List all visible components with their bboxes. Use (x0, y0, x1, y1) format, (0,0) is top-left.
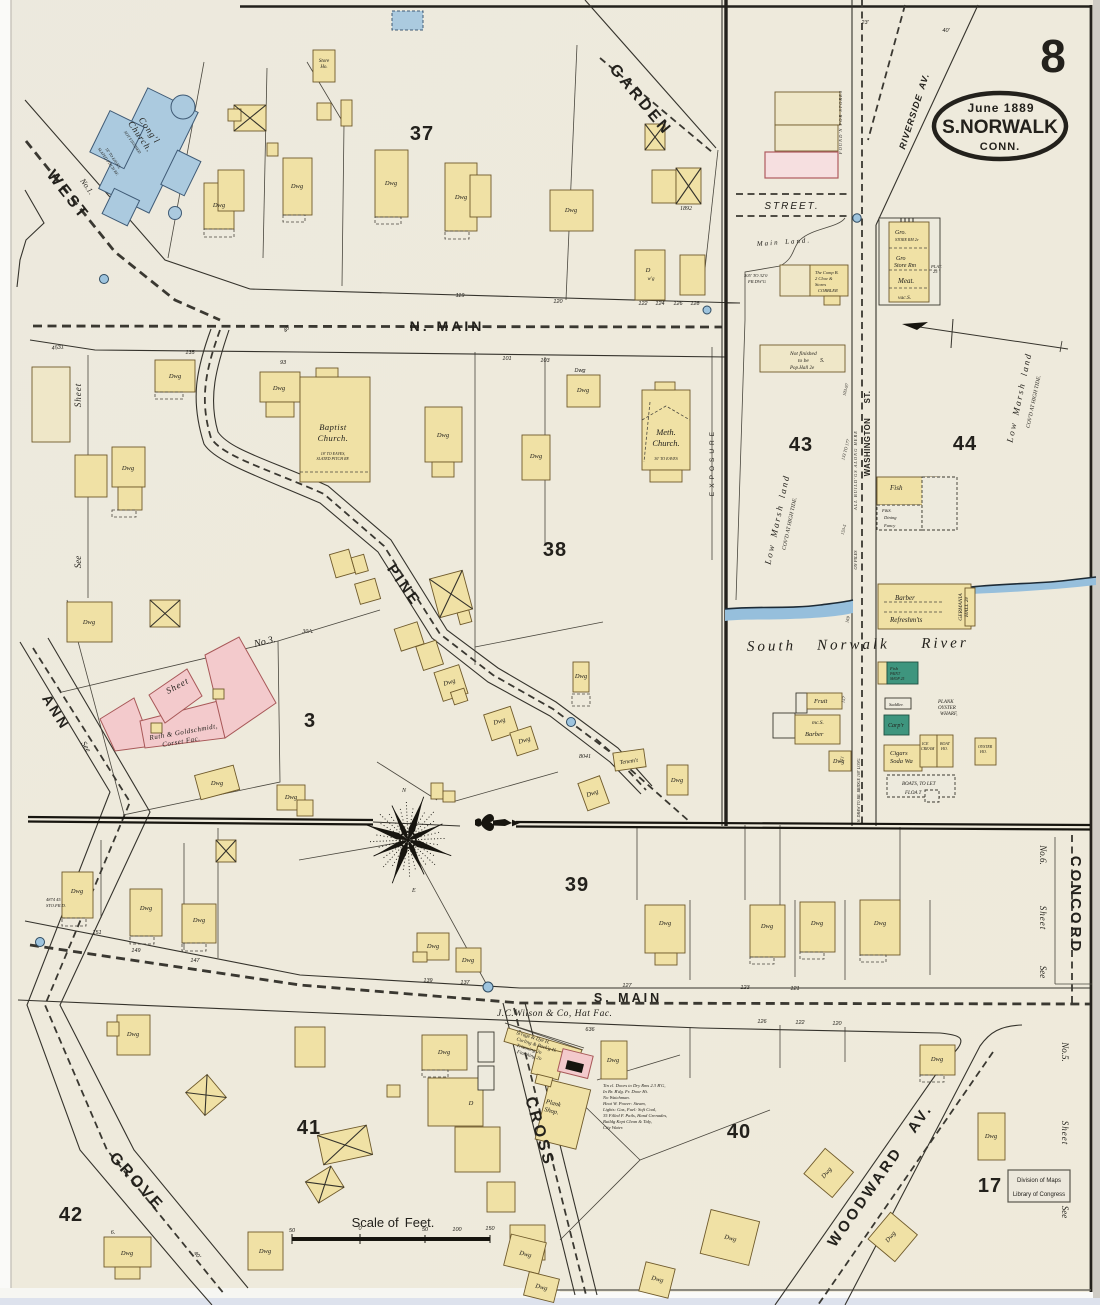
svg-text:151: 151 (92, 930, 101, 936)
svg-text:CONCORD: CONCORD (1067, 856, 1084, 955)
svg-text:Dwg: Dwg (139, 905, 153, 912)
svg-text:Dwg: Dwg (658, 920, 672, 927)
svg-text:SLATED PITCH RF.: SLATED PITCH RF. (316, 456, 349, 461)
svg-text:Dwg: Dwg (760, 923, 774, 930)
svg-text:Barber: Barber (805, 731, 824, 738)
svg-text:Saddler.: Saddler. (889, 702, 904, 707)
svg-text:Baptist: Baptist (319, 422, 347, 432)
svg-text:122: 122 (795, 1020, 804, 1026)
svg-text:6.: 6. (111, 1230, 116, 1236)
svg-text:Dwg: Dwg (574, 368, 586, 374)
svg-text:Barber: Barber (895, 594, 915, 602)
svg-text:23': 23' (860, 20, 869, 26)
svg-text:44: 44 (953, 433, 977, 455)
svg-text:S. MAIN: S. MAIN (594, 991, 662, 1005)
svg-text:S.: S. (820, 358, 825, 364)
svg-text:S.NORWALK: S.NORWALK (942, 117, 1058, 138)
svg-text:25: 25 (933, 269, 938, 274)
svg-text:17: 17 (978, 1175, 1002, 1197)
svg-text:Dwg: Dwg (437, 1049, 451, 1056)
svg-text:37: 37 (410, 123, 434, 145)
svg-text:Library of Congress: Library of Congress (1013, 1192, 1065, 1198)
svg-text:Dwg: Dwg (168, 373, 182, 380)
svg-text:Church.: Church. (318, 433, 349, 443)
svg-text:100: 100 (452, 1227, 462, 1233)
svg-text:126: 126 (757, 1019, 767, 1025)
svg-text:FOUND'N FOR STORES: FOUND'N FOR STORES (838, 90, 843, 155)
svg-text:149: 149 (131, 948, 140, 954)
svg-text:Dwg: Dwg (384, 180, 398, 187)
svg-text:Refreshm'ts: Refreshm'ts (889, 616, 923, 624)
svg-text:STREET.: STREET. (764, 201, 819, 212)
svg-text:FR.DW'G: FR.DW'G (747, 279, 767, 284)
svg-text:WHARF,: WHARF, (940, 712, 958, 717)
svg-text:mc.S.: mc.S. (812, 720, 824, 726)
svg-text:CONN.: CONN. (980, 141, 1020, 153)
svg-text:Dwg: Dwg (461, 957, 475, 964)
svg-text:127: 127 (622, 983, 632, 989)
svg-text:Gro: Gro (896, 256, 905, 262)
svg-text:126: 126 (673, 301, 683, 307)
svg-text:30' TO EAVES: 30' TO EAVES (654, 456, 677, 461)
svg-text:101: 101 (502, 356, 511, 362)
svg-text:50: 50 (422, 1227, 429, 1233)
svg-text:ALL BUILD'GS ALONG HERE: ALL BUILD'GS ALONG HERE (853, 430, 858, 511)
svg-text:121: 121 (790, 986, 799, 992)
svg-text:128: 128 (690, 301, 700, 307)
svg-text:D: D (468, 1100, 474, 1107)
svg-text:Ho.: Ho. (319, 65, 327, 70)
svg-text:120: 120 (832, 1021, 842, 1027)
svg-text:4874 45: 4874 45 (46, 897, 61, 902)
svg-text:SHOP 25: SHOP 25 (890, 677, 904, 681)
svg-text:Fish: Fish (889, 666, 899, 671)
svg-text:30A.: 30A. (301, 629, 313, 635)
svg-text:Fruit: Fruit (813, 698, 828, 705)
svg-text:W. DRAW TO BR. BRIDGE 160' LON: W. DRAW TO BR. BRIDGE 160' LONG. (856, 758, 861, 823)
svg-text:PLANK: PLANK (937, 700, 954, 705)
svg-text:June 1889: June 1889 (967, 101, 1034, 115)
svg-text:WASHINGTON: WASHINGTON (863, 418, 872, 477)
svg-text:Dwg: Dwg (873, 920, 887, 927)
svg-text:Dwg: Dwg (258, 1248, 272, 1255)
svg-text:Dwg: Dwg (272, 385, 286, 392)
svg-text:41: 41 (297, 1117, 321, 1139)
svg-text:Dwg: Dwg (82, 619, 96, 626)
svg-text:No Watchman.: No Watchman. (602, 1095, 630, 1100)
svg-text:Dwg: Dwg (126, 1031, 140, 1038)
svg-text:OYSTER: OYSTER (938, 706, 956, 711)
svg-text:Carp'r: Carp'r (888, 723, 905, 729)
svg-text:Dwg: Dwg (564, 207, 578, 214)
svg-text:8: 8 (1040, 30, 1066, 82)
svg-text:103: 103 (540, 358, 550, 364)
svg-text:Sheet: Sheet (1038, 906, 1048, 931)
svg-text:Store: Store (319, 59, 330, 64)
svg-text:1892: 1892 (680, 206, 692, 212)
svg-text:43: 43 (789, 434, 813, 456)
svg-text:135: 135 (185, 350, 195, 356)
svg-text:Dwg: Dwg (192, 917, 206, 924)
svg-text:See: See (1060, 1206, 1070, 1219)
svg-text:CREAM: CREAM (921, 746, 935, 751)
svg-text:Pop.Hall 2e: Pop.Hall 2e (789, 366, 815, 371)
svg-text:STO.FR.D.: STO.FR.D. (46, 903, 66, 908)
svg-text:D: D (645, 267, 651, 274)
svg-text:PAINT: PAINT (889, 672, 901, 676)
svg-text:120: 120 (553, 299, 563, 305)
svg-text:122: 122 (638, 301, 647, 307)
svg-text:Dining: Dining (883, 515, 897, 520)
svg-text:Soda Wa: Soda Wa (890, 758, 913, 765)
svg-text:147: 147 (190, 958, 200, 964)
svg-text:Not finished: Not finished (789, 350, 817, 357)
svg-text:FLOA T: FLOA T (904, 791, 923, 796)
svg-text:Dwg: Dwg (284, 794, 298, 801)
svg-text:Dwg: Dwg (290, 183, 304, 190)
svg-text:ON PILES: ON PILES (853, 550, 858, 570)
svg-text:Dwg: Dwg (121, 465, 135, 472)
svg-text:3: 3 (304, 710, 316, 732)
svg-text:40: 40 (727, 1121, 751, 1143)
svg-text:Dwg: Dwg (70, 888, 84, 895)
svg-text:to be: to be (798, 358, 809, 364)
svg-text:139: 139 (423, 978, 432, 984)
svg-text:Meth.: Meth. (655, 427, 676, 437)
svg-text:Church.: Church. (652, 438, 679, 448)
svg-text:Dwg: Dwg (810, 920, 824, 927)
svg-text:In Br. B'dg. Fr. Door Ht.: In Br. B'dg. Fr. Door Ht. (602, 1089, 648, 1094)
svg-text:93: 93 (280, 360, 287, 366)
svg-text:ST.: ST. (863, 391, 872, 404)
svg-text:F&S.: F&S. (881, 508, 892, 513)
svg-text:Fancy: Fancy (883, 523, 895, 528)
svg-text:BOATS, TO LET: BOATS, TO LET (902, 782, 937, 787)
svg-text:Division of Maps: Division of Maps (1017, 1178, 1061, 1184)
svg-text:Fish: Fish (889, 484, 903, 492)
svg-text:Dwg: Dwg (454, 194, 468, 201)
svg-text:See: See (73, 556, 83, 569)
svg-text:Dwg: Dwg (670, 777, 684, 784)
svg-text:Dwg: Dwg (576, 387, 590, 394)
svg-text:Dwg: Dwg (930, 1056, 944, 1063)
svg-text:Dwg: Dwg (426, 943, 440, 950)
svg-text:636: 636 (585, 1027, 595, 1033)
svg-text:39: 39 (565, 874, 589, 896)
svg-text:40': 40' (942, 28, 950, 34)
svg-text:The Comp B.: The Comp B. (815, 270, 839, 275)
svg-text:Dwg: Dwg (574, 673, 588, 680)
svg-text:HO.: HO. (940, 746, 948, 751)
svg-text:STORE RM 2e: STORE RM 2e (895, 237, 919, 242)
svg-text:124: 124 (655, 301, 664, 307)
svg-text:42: 42 (59, 1204, 83, 1226)
svg-text:Dwg: Dwg (212, 202, 226, 209)
svg-text:Cigars: Cigars (890, 750, 908, 757)
svg-text:305' TO 32'0: 305' TO 32'0 (744, 273, 768, 278)
svg-text:J.C.Wilson & Co, Hat Fac.: J.C.Wilson & Co, Hat Fac. (497, 1009, 612, 1019)
svg-text:No.6.: No.6. (1038, 844, 1048, 865)
svg-text:Dwg: Dwg (210, 780, 224, 787)
svg-text:EXPOSURE: EXPOSURE (709, 428, 716, 496)
svg-text:Dwg: Dwg (529, 453, 543, 460)
svg-text:Meat.: Meat. (897, 277, 914, 285)
svg-text:Store Rm: Store Rm (894, 263, 917, 269)
svg-text:Stores: Stores (815, 282, 826, 287)
svg-text:150: 150 (485, 1226, 495, 1232)
svg-text:HO.: HO. (979, 749, 987, 754)
svg-text:City Water.: City Water. (603, 1125, 623, 1130)
svg-text:vac.S.: vac.S. (898, 295, 911, 301)
svg-text:No.5.: No.5. (1060, 1041, 1070, 1062)
svg-text:N. MAIN: N. MAIN (410, 318, 485, 334)
svg-text:Dwg: Dwg (436, 432, 450, 439)
svg-text:Dwg: Dwg (120, 1250, 134, 1257)
svg-text:E: E (411, 888, 416, 894)
svg-text:2 Clow &: 2 Clow & (815, 276, 833, 281)
svg-text:8041: 8041 (579, 753, 591, 760)
svg-text:See: See (1038, 966, 1048, 979)
svg-text:50: 50 (289, 1228, 296, 1234)
svg-text:Gro.: Gro. (895, 230, 906, 236)
svg-text:HALL 2e: HALL 2e (964, 596, 970, 617)
svg-text:Dwg: Dwg (984, 1133, 998, 1140)
svg-text:Sheet: Sheet (1060, 1121, 1070, 1146)
svg-text:Sheet: Sheet (73, 383, 83, 408)
svg-text:Dwg: Dwg (606, 1057, 620, 1064)
svg-text:119: 119 (456, 293, 465, 299)
svg-text:38: 38 (543, 539, 567, 561)
svg-text:137: 137 (460, 980, 470, 986)
svg-text:COBBLER: COBBLER (818, 288, 838, 293)
svg-text:w'g: w'g (648, 277, 655, 282)
svg-text:123: 123 (740, 985, 750, 991)
